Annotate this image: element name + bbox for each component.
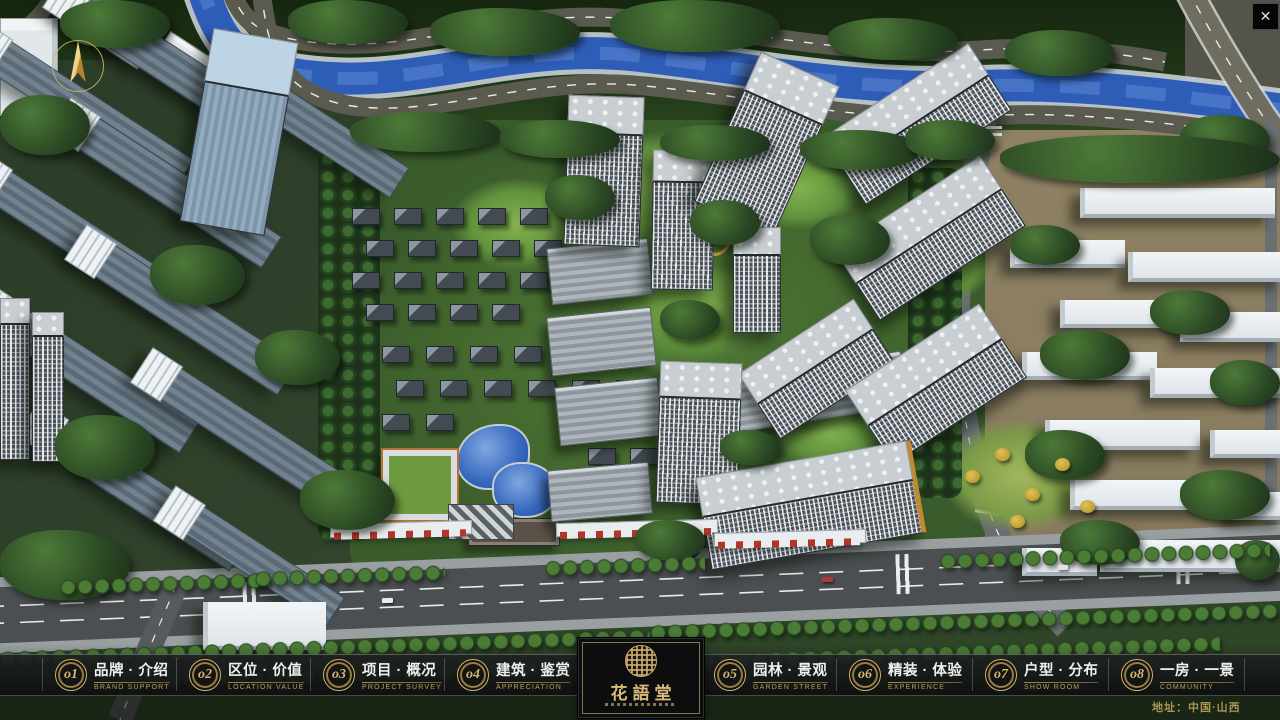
nav-number-badge: o3 xyxy=(323,659,355,691)
midrise-building xyxy=(546,307,657,377)
nav-item-location-value[interactable]: o2 区位 · 价值LOCATION VALUE xyxy=(176,658,310,691)
nav-number-badge: o2 xyxy=(189,659,221,691)
villa xyxy=(528,380,556,397)
vehicle xyxy=(1058,565,1068,570)
apartment-tower xyxy=(0,298,30,460)
nav-divider xyxy=(228,682,304,683)
nav-label: 园林 · 景观 xyxy=(753,659,828,680)
nav-item-room-views[interactable]: o8 一房 · 一景COMMUNITY xyxy=(1108,658,1242,691)
nav-sublabel: COMMUNITY xyxy=(1160,684,1234,691)
nav-label: 一房 · 一景 xyxy=(1160,659,1234,680)
villa xyxy=(426,414,454,431)
villa xyxy=(478,272,506,289)
nav-sublabel: LOCATION VALUE xyxy=(228,684,304,691)
close-icon: ✕ xyxy=(1260,8,1272,24)
golden-tree xyxy=(1010,515,1025,528)
nav-label: 户型 · 分布 xyxy=(1024,659,1098,680)
villa xyxy=(426,346,454,363)
tree-cluster xyxy=(1150,290,1230,335)
nav-item-unit-layouts[interactable]: o7 户型 · 分布SHOW ROOM xyxy=(972,658,1106,691)
tree-cluster xyxy=(690,200,760,245)
project-address: 地址：中国·山西 xyxy=(1152,699,1241,715)
nav-sublabel: APPRECIATION xyxy=(496,684,570,691)
tree-cluster xyxy=(1005,30,1115,76)
nav-divider xyxy=(94,682,170,683)
tree-cluster xyxy=(350,112,500,152)
tree-cluster xyxy=(1025,430,1105,480)
vehicle xyxy=(822,577,833,582)
tree-cluster xyxy=(1180,470,1270,520)
residential-slab xyxy=(1210,430,1280,458)
masterplan-viewport[interactable] xyxy=(0,0,1280,720)
villa xyxy=(396,380,424,397)
villa xyxy=(520,272,548,289)
golden-tree xyxy=(1080,500,1095,513)
nav-divider xyxy=(888,682,962,683)
nav-label: 区位 · 价值 xyxy=(228,659,304,680)
nav-number-badge: o8 xyxy=(1121,659,1153,691)
nav-divider xyxy=(496,682,570,683)
nav-number-badge: o4 xyxy=(457,659,489,691)
tree-cluster xyxy=(660,300,720,340)
nav-label: 精装 · 体验 xyxy=(888,659,962,680)
villa xyxy=(436,272,464,289)
nav-separator xyxy=(1244,658,1245,691)
logo-seal-icon xyxy=(625,645,657,677)
villa xyxy=(352,272,380,289)
tree-cluster xyxy=(150,245,245,305)
golden-tree xyxy=(965,470,980,483)
nav-divider xyxy=(753,682,828,683)
nav-label: 建筑 · 鉴赏 xyxy=(496,659,570,680)
midrise-building xyxy=(554,377,664,447)
villa xyxy=(382,346,410,363)
villa xyxy=(436,208,464,225)
crosswalk xyxy=(895,554,912,595)
compass[interactable] xyxy=(46,34,110,98)
tree-cluster xyxy=(905,120,995,160)
tree-cluster xyxy=(720,430,780,465)
apartment-tower xyxy=(563,95,644,248)
nav-number-badge: o5 xyxy=(714,659,746,691)
nav-sublabel: GARDEN STREET xyxy=(753,684,828,691)
villa xyxy=(492,304,520,321)
nav-label: 项目 · 概况 xyxy=(362,659,442,680)
golden-tree xyxy=(1025,488,1040,501)
villa xyxy=(514,346,542,363)
villa xyxy=(366,304,394,321)
golden-tree xyxy=(1055,458,1070,471)
nav-number-badge: o1 xyxy=(55,659,87,691)
close-button[interactable]: ✕ xyxy=(1252,3,1279,30)
nav-item-architecture[interactable]: o4 建筑 · 鉴赏APPRECIATION xyxy=(444,658,578,691)
nav-sublabel: PROJECT SURVEY xyxy=(362,684,442,691)
villa xyxy=(366,240,394,257)
tree-cluster xyxy=(55,415,155,480)
nav-item-interior-experience[interactable]: o6 精装 · 体验EXPERIENCE xyxy=(836,658,970,691)
villa xyxy=(470,346,498,363)
villa xyxy=(408,304,436,321)
logo-name: 花語堂 xyxy=(579,679,703,704)
residential-slab xyxy=(1080,188,1275,218)
nav-number-badge: o7 xyxy=(985,659,1017,691)
residential-slab xyxy=(1128,252,1280,282)
nav-sublabel: SHOW ROOM xyxy=(1024,684,1098,691)
nav-divider xyxy=(1160,682,1234,683)
nav-item-project-survey[interactable]: o3 项目 · 概况PROJECT SURVEY xyxy=(310,658,444,691)
tree-cluster xyxy=(660,125,770,161)
villa xyxy=(492,240,520,257)
nav-number-badge: o6 xyxy=(849,659,881,691)
villa xyxy=(478,208,506,225)
nav-sublabel: BRAND SUPPORT xyxy=(94,684,170,691)
tree-cluster xyxy=(430,8,580,56)
tree-cluster xyxy=(1210,360,1280,405)
project-logo-plate: 花語堂 xyxy=(578,638,704,718)
midrise-building xyxy=(547,462,653,523)
tower-roof xyxy=(32,312,64,337)
tree-cluster xyxy=(635,520,705,560)
villa xyxy=(588,448,616,465)
midrise-building xyxy=(546,238,653,305)
tree-cluster xyxy=(255,330,340,385)
presentation-window: ✕ o1 品牌 · 介绍BRAND SUPPORT o2 区位 · 价值LOCA… xyxy=(0,0,1280,720)
tree-cluster xyxy=(1000,135,1280,183)
villa xyxy=(394,208,422,225)
nav-sublabel: EXPERIENCE xyxy=(888,684,962,691)
tree-cluster xyxy=(288,0,408,44)
nav-divider xyxy=(362,682,442,683)
golden-tree xyxy=(995,448,1010,461)
villa xyxy=(382,414,410,431)
tree-cluster xyxy=(0,95,90,155)
kindergarten-building xyxy=(383,450,457,520)
tree-cluster xyxy=(500,120,620,158)
villa xyxy=(520,208,548,225)
villa xyxy=(484,380,512,397)
tree-cluster xyxy=(1010,225,1080,265)
tree-cluster xyxy=(810,215,890,265)
villa xyxy=(440,380,468,397)
nav-label: 品牌 · 介绍 xyxy=(94,659,170,680)
tower-roof xyxy=(0,298,30,325)
tree-cluster xyxy=(300,470,395,530)
nav-item-garden-landscape[interactable]: o5 园林 · 景观GARDEN STREET xyxy=(702,658,836,691)
tower-roof xyxy=(659,361,742,401)
villa xyxy=(408,240,436,257)
villa xyxy=(352,208,380,225)
nav-divider xyxy=(1024,682,1098,683)
tree-cluster xyxy=(610,0,780,52)
tree-cluster xyxy=(1040,330,1130,380)
tree-cluster xyxy=(545,175,615,220)
logo-tagline xyxy=(605,703,677,706)
tree-cluster xyxy=(800,130,920,170)
villa xyxy=(394,272,422,289)
villa xyxy=(450,304,478,321)
tree-cluster xyxy=(828,18,958,60)
villa xyxy=(450,240,478,257)
vehicle xyxy=(382,598,393,603)
nav-item-brand-intro[interactable]: o1 品牌 · 介绍BRAND SUPPORT xyxy=(42,658,176,691)
